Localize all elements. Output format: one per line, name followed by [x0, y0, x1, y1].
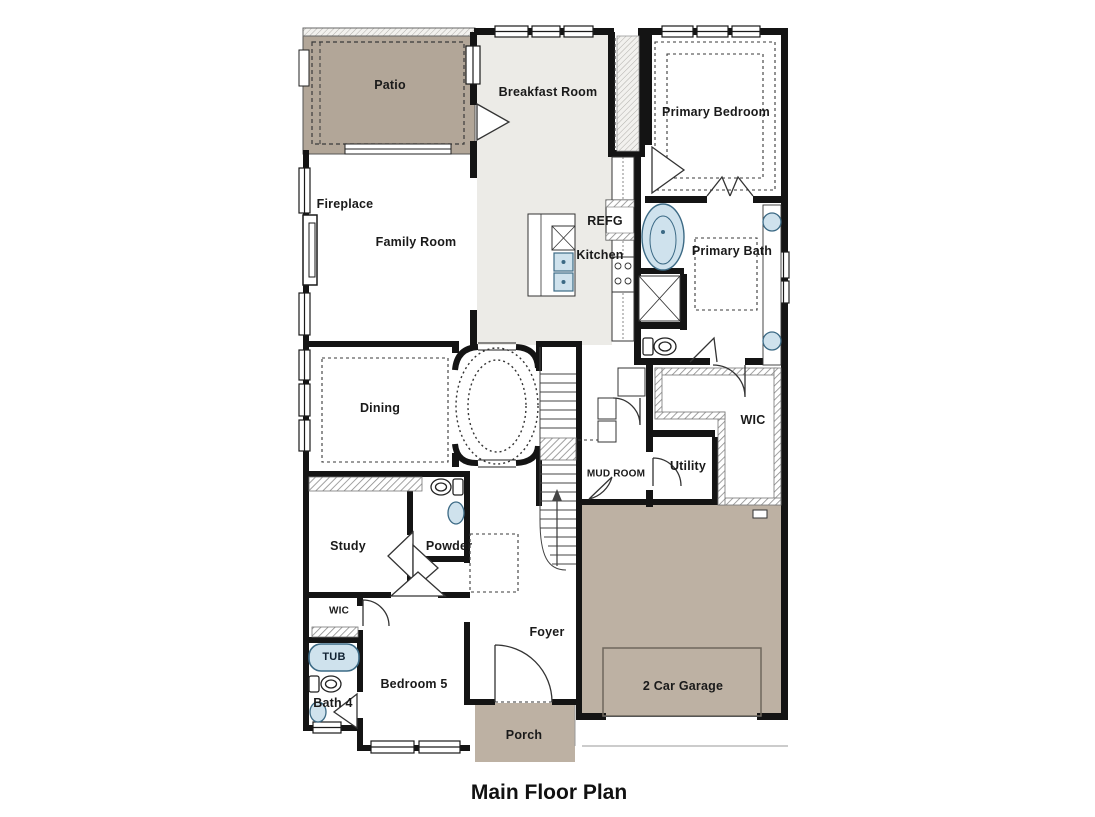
under-stair-closet	[540, 438, 576, 460]
room-label-kitchen: Kitchen	[576, 248, 623, 262]
powder-fixtures	[431, 479, 464, 524]
sink-icon	[763, 213, 781, 231]
primary-bedroom-door	[652, 147, 684, 193]
room-label-wic-small: WIC	[329, 606, 349, 617]
room-label-refg: REFG	[587, 214, 623, 228]
primary-double-door	[707, 177, 730, 196]
bedroom-chase	[617, 36, 639, 151]
page-title: Main Floor Plan	[471, 781, 627, 805]
breakfast-kitchen-area	[477, 32, 612, 345]
toilet-icon	[643, 338, 676, 355]
fixture-label-tub: TUB	[322, 651, 345, 663]
room-label-primary-bath: Primary Bath	[692, 244, 772, 258]
room-label-patio: Patio	[374, 78, 406, 92]
range-icon	[612, 257, 634, 292]
room-label-powder: Powder	[426, 539, 472, 553]
floor-plan-drawing	[0, 0, 1095, 817]
wic-small-door	[363, 600, 389, 626]
study-shelf	[309, 477, 422, 491]
area-fills	[303, 28, 782, 762]
room-label-study: Study	[330, 539, 366, 553]
room-label-primary-bedroom: Primary Bedroom	[662, 105, 770, 119]
fireplace-icon	[303, 215, 317, 285]
sink-icon	[448, 502, 464, 524]
room-label-fireplace: Fireplace	[317, 197, 374, 211]
mud-room-door	[613, 398, 640, 425]
sink-icon	[763, 332, 781, 350]
wic-small-shelf	[312, 627, 358, 637]
room-label-porch: Porch	[506, 728, 542, 742]
garage-entry-door	[589, 477, 612, 499]
primary-bath-fixtures	[639, 204, 781, 365]
rotunda	[455, 343, 538, 467]
front-door	[495, 645, 552, 702]
mud-room-detail	[598, 368, 645, 442]
toilet-icon	[309, 676, 341, 692]
room-label-utility: Utility	[670, 459, 706, 473]
room-label-breakfast: Breakfast Room	[499, 85, 598, 99]
room-label-foyer: Foyer	[529, 625, 564, 639]
room-label-dining: Dining	[360, 401, 400, 415]
toilet-icon	[431, 479, 463, 495]
room-label-bath4: Bath 4	[313, 696, 352, 710]
room-label-wic: WIC	[741, 413, 766, 427]
bedroom5-door	[391, 572, 445, 596]
room-label-bedroom5: Bedroom 5	[380, 677, 447, 691]
room-label-garage: 2 Car Garage	[643, 679, 723, 693]
floor-plan-canvas: Patio Breakfast Room Primary Bedroom Fir…	[0, 0, 1095, 817]
bathtub-icon	[642, 204, 684, 270]
room-label-family-room: Family Room	[376, 235, 457, 249]
study-door	[388, 532, 413, 580]
room-label-mud-room: MUD ROOM	[587, 469, 645, 480]
